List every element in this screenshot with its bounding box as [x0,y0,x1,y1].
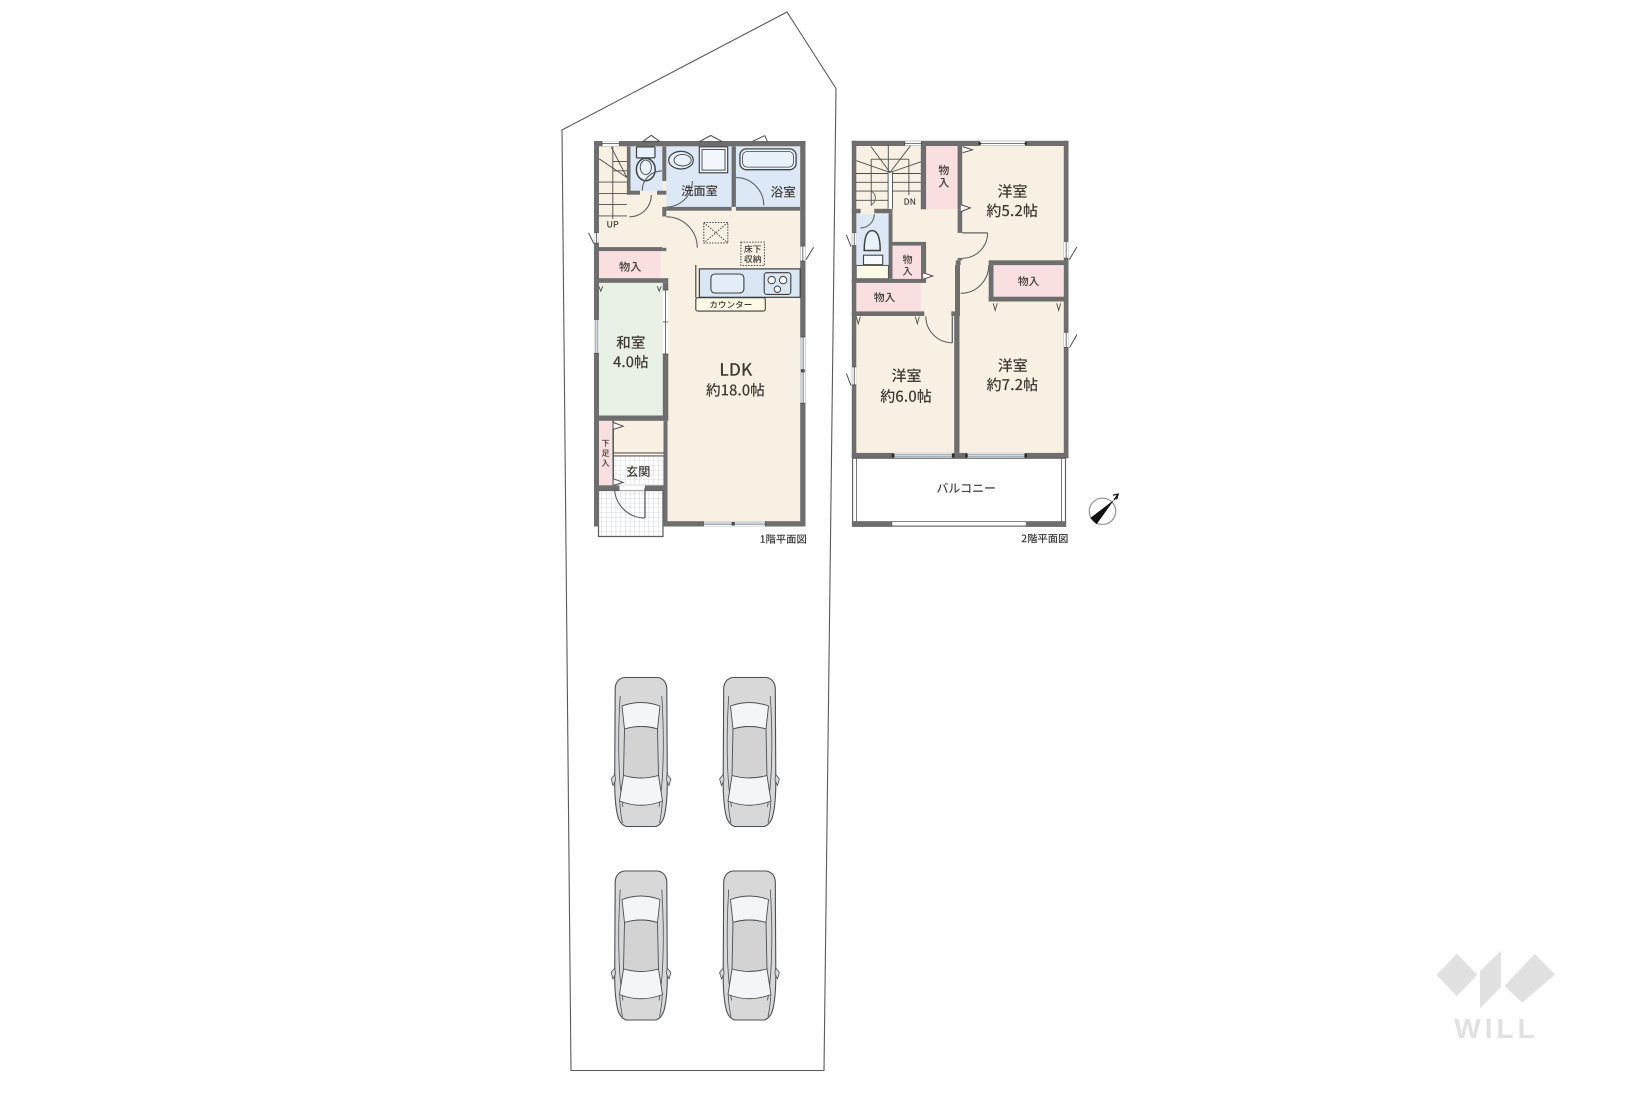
svg-text:WILL: WILL [1454,1013,1538,1044]
